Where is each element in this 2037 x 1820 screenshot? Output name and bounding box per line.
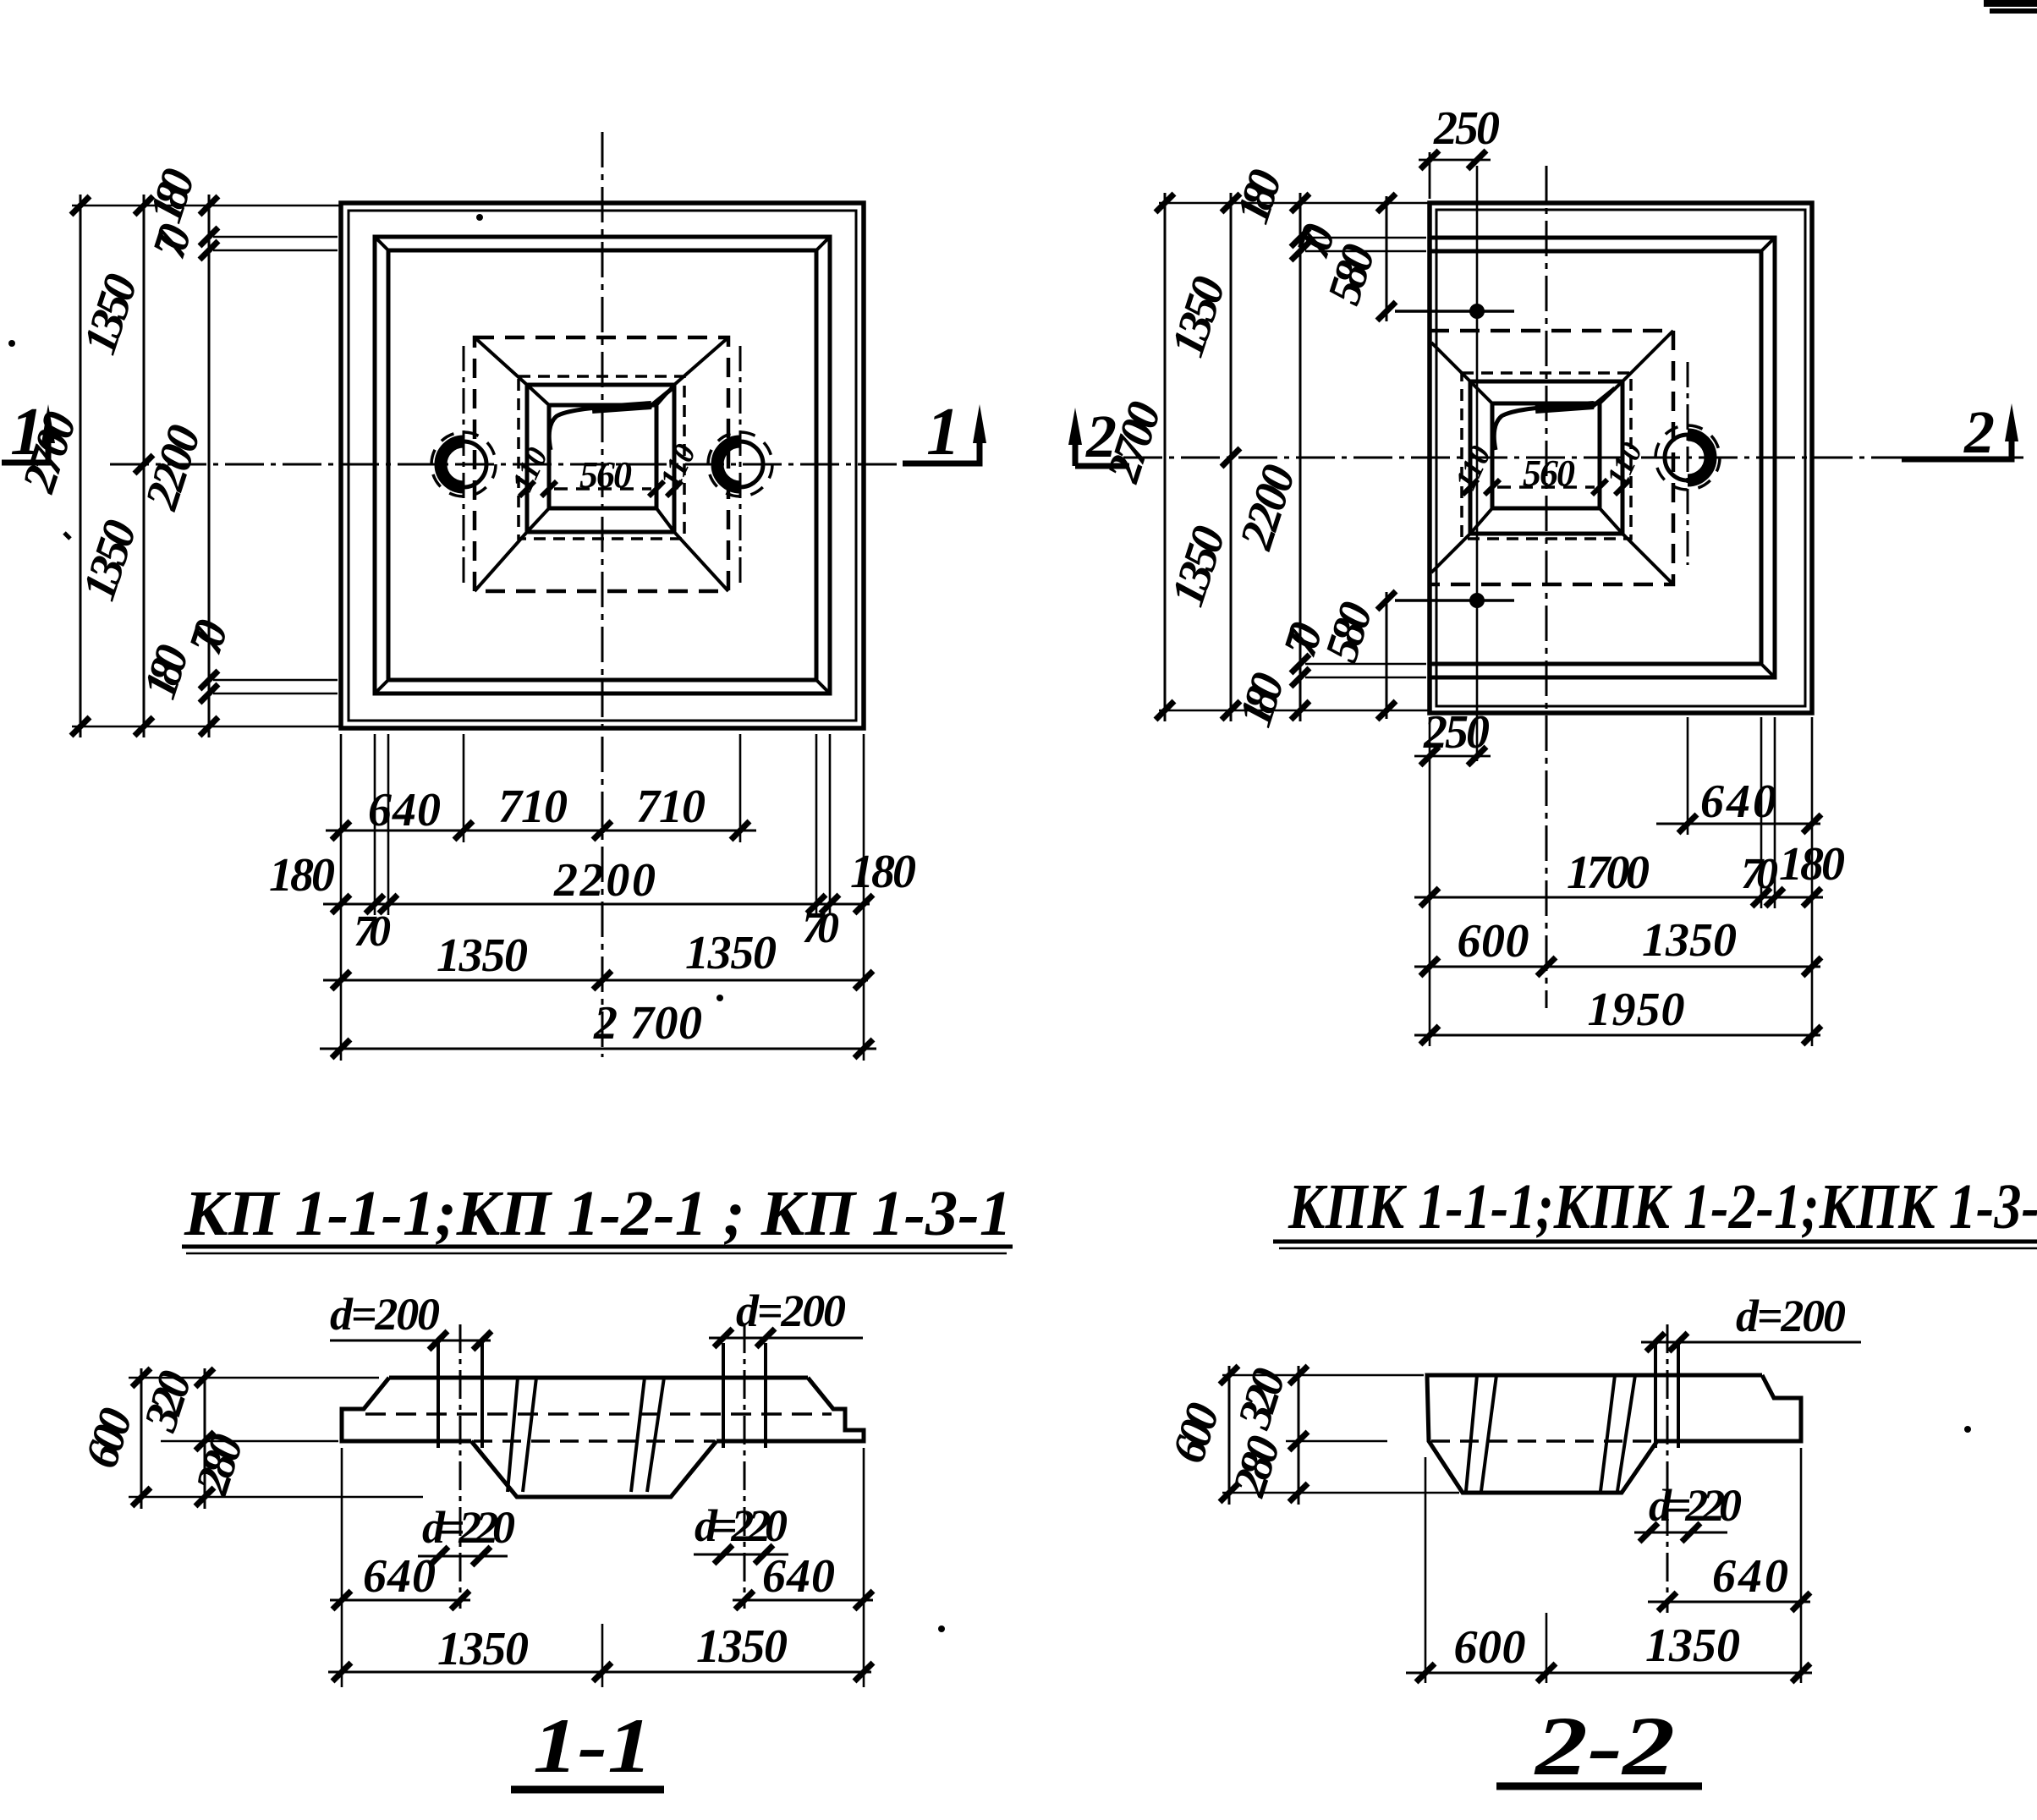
svg-text:d=200: d=200: [330, 1289, 440, 1340]
svg-text:250: 250: [1423, 706, 1490, 759]
svg-text:1350: 1350: [685, 927, 777, 979]
svg-text:70: 70: [1741, 850, 1778, 898]
svg-text:d=220: d=220: [1649, 1480, 1742, 1531]
svg-text:640: 640: [363, 1550, 436, 1603]
svg-text:1350: 1350: [1645, 1620, 1740, 1672]
svg-text:КП 1-1-1;КП 1-2-1 ; КП 1-3-1: КП 1-1-1;КП 1-2-1 ; КП 1-3-1: [184, 1178, 1012, 1249]
svg-text:1350: 1350: [437, 1623, 529, 1675]
svg-text:1-1: 1-1: [533, 1702, 652, 1789]
svg-text:640: 640: [368, 784, 441, 836]
svg-text:КПК 1-1-1;КПК 1-2-1;КПК 1-3-1: КПК 1-1-1;КПК 1-2-1;КПК 1-3-1: [1288, 1171, 2037, 1242]
svg-text:1: 1: [926, 395, 960, 469]
svg-text:1950: 1950: [1588, 984, 1685, 1036]
svg-text:560: 560: [579, 454, 632, 496]
svg-text:1350: 1350: [1642, 914, 1737, 967]
svg-text:640: 640: [762, 1550, 835, 1603]
svg-text:640: 640: [1700, 776, 1776, 828]
svg-text:2: 2: [1963, 398, 1995, 466]
svg-text:250: 250: [1433, 102, 1500, 155]
svg-text:d=200: d=200: [1736, 1291, 1846, 1341]
svg-text:2 700: 2 700: [593, 997, 702, 1050]
svg-text:1350: 1350: [696, 1620, 788, 1673]
svg-text:2-2: 2-2: [1534, 1699, 1675, 1793]
svg-text:d=220: d=220: [422, 1502, 515, 1553]
svg-text:180: 180: [1779, 838, 1845, 891]
svg-text:600: 600: [1458, 915, 1529, 968]
svg-text:710: 710: [498, 781, 568, 833]
svg-text:180: 180: [850, 846, 916, 898]
svg-text:710: 710: [636, 781, 706, 833]
svg-text:d=220: d=220: [695, 1500, 788, 1551]
svg-text:180: 180: [269, 849, 335, 902]
svg-text:d=200: d=200: [736, 1286, 846, 1336]
svg-text:70: 70: [802, 904, 839, 952]
svg-text:640: 640: [1712, 1550, 1788, 1603]
svg-text:1700: 1700: [1567, 847, 1650, 899]
svg-text:600: 600: [1454, 1621, 1526, 1674]
svg-text:1350: 1350: [436, 929, 528, 982]
svg-text:70: 70: [354, 907, 391, 956]
